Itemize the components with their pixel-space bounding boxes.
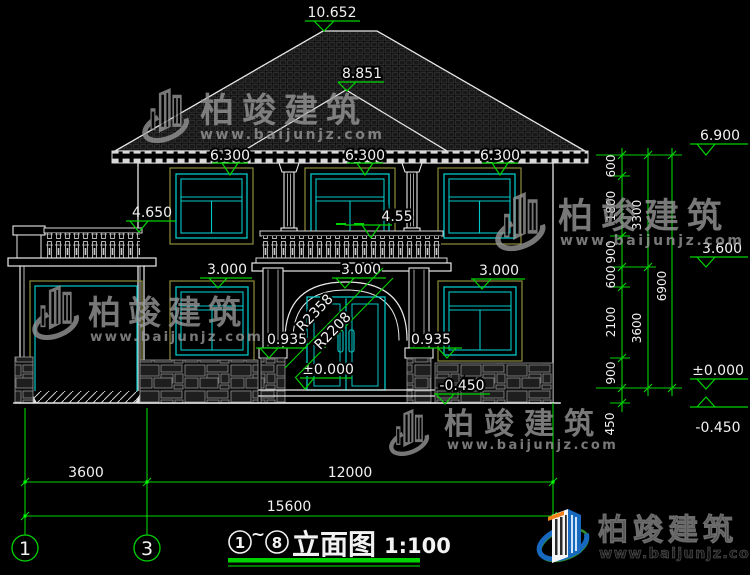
footer-logo-site: www.baijunjz.com bbox=[599, 546, 750, 562]
elev-3000-label: 3.000 bbox=[479, 263, 519, 279]
dim-bottom-12000: 12000 bbox=[328, 465, 373, 481]
watermark-site: www.baijunjz.com bbox=[90, 329, 263, 345]
elev-zero-label: ±0.000 bbox=[302, 362, 354, 378]
dim-2100: 2100 bbox=[604, 307, 618, 338]
watermark-logo-icon bbox=[31, 285, 81, 343]
watermark-right: 柏竣建筑 www.baijunjz.com bbox=[494, 192, 745, 254]
elev-ridge-label: 10.652 bbox=[308, 5, 357, 21]
grid-bubble-3-label: 3 bbox=[141, 538, 153, 560]
watermark-bottom: 柏竣建筑 www.baijunjz.com bbox=[388, 407, 618, 459]
elev-terrace-label: 4.650 bbox=[132, 205, 172, 221]
elev-minus-label: -0.450 bbox=[695, 420, 740, 436]
drawing-title: 立面图 bbox=[292, 528, 376, 561]
watermark-left: 柏竣建筑 www.baijunjz.com bbox=[31, 285, 263, 345]
watermark-brand: 柏竣建筑 bbox=[558, 196, 730, 237]
elev-eave-label: 6.300 bbox=[210, 148, 250, 164]
elev-0935-label: 0.935 bbox=[267, 332, 307, 348]
footer-logo: 柏竣建筑 www.baijunjz.com bbox=[535, 509, 750, 567]
title-underline-thick bbox=[228, 558, 420, 563]
title-tilde: ~ bbox=[251, 525, 265, 545]
footer-logo-icon bbox=[535, 509, 593, 567]
title-axis-end: 8 bbox=[272, 534, 282, 552]
stone-base-left bbox=[140, 360, 258, 403]
watermark-brand: 柏竣建筑 bbox=[200, 91, 368, 131]
title-axis-start: 1 bbox=[235, 534, 245, 552]
elev-0935-label: 0.935 bbox=[411, 332, 451, 348]
elev-hip-label: 8.851 bbox=[342, 66, 382, 82]
dim-600: 600 bbox=[604, 155, 618, 178]
elev-balcony-label: 4.55 bbox=[381, 209, 412, 225]
elev-6900-label: 6.900 bbox=[700, 128, 740, 144]
elev-zero-label: ±0.000 bbox=[692, 363, 744, 379]
dim-3600: 3600 bbox=[630, 313, 644, 344]
dim-450: 450 bbox=[603, 413, 617, 436]
elev-3000-label: 3.000 bbox=[207, 262, 247, 278]
watermark-logo-icon bbox=[388, 409, 430, 459]
watermark-site: www.baijunjz.com bbox=[200, 127, 385, 143]
terrace-balustrade bbox=[46, 233, 140, 258]
watermark-site: www.baijunjz.com bbox=[447, 438, 618, 453]
pedestal-cap-right bbox=[405, 348, 433, 358]
dim-6900: 6900 bbox=[655, 271, 669, 302]
elev-eave-label: 6.300 bbox=[480, 148, 520, 164]
marker-ridge: 10.652 bbox=[305, 5, 360, 31]
terrace-slab bbox=[8, 258, 156, 266]
watermark-brand: 柏竣建筑 bbox=[444, 407, 604, 442]
title-block: 1 ~ 8 立面图 1:100 bbox=[228, 525, 451, 566]
right-dimension-chain: 600 1800 900 600 2100 900 450 3300 3600 … bbox=[596, 128, 748, 436]
footer-logo-brand: 柏竣建筑 bbox=[598, 513, 738, 548]
watermark-brand: 柏竣建筑 bbox=[88, 293, 248, 332]
drawing-scale: 1:100 bbox=[384, 534, 451, 558]
dim-bottom-15600: 15600 bbox=[267, 499, 312, 515]
stone-base-parapet bbox=[15, 357, 33, 403]
watermark-site: www.baijunjz.com bbox=[560, 233, 745, 249]
elev-eave-label: 6.300 bbox=[345, 148, 385, 164]
parapet-cap bbox=[13, 226, 45, 235]
dim-900: 900 bbox=[604, 362, 618, 385]
dim-600: 600 bbox=[604, 266, 618, 289]
dim-bottom-3600: 3600 bbox=[68, 465, 104, 481]
cad-elevation-screenshot: 10.652 8.851 6.300 6.300 6.300 4.650 bbox=[0, 0, 750, 575]
right-elevation-markers: 6.900 3.600 ±0.000 -0.450 bbox=[690, 128, 748, 436]
driveway-ramp-hatch bbox=[22, 391, 142, 403]
elev-minus-label: -0.450 bbox=[439, 378, 484, 394]
grid-bubble-1-label: 1 bbox=[19, 538, 31, 560]
elevation-drawing: 10.652 8.851 6.300 6.300 6.300 4.650 bbox=[0, 0, 750, 575]
